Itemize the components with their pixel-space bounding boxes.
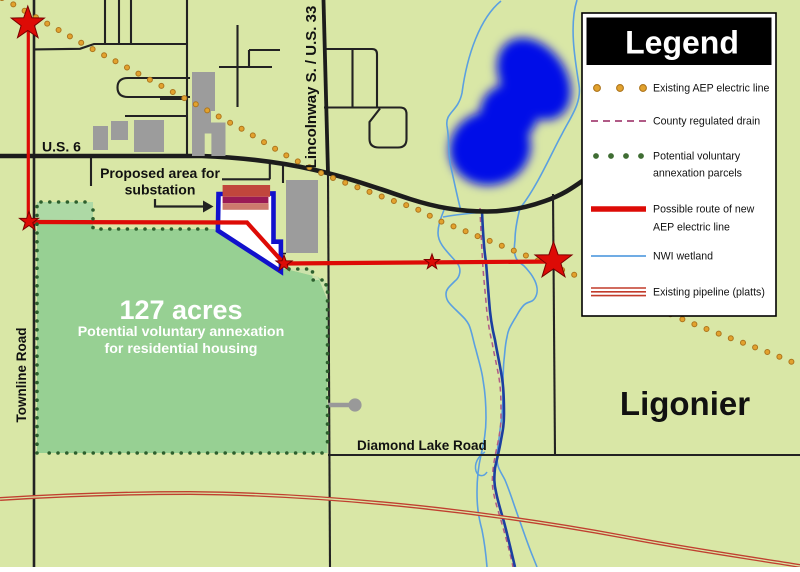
svg-text:for residential housing: for residential housing xyxy=(105,341,258,357)
svg-text:Townline Road: Townline Road xyxy=(14,328,29,423)
svg-text:Lincolnway S. / U.S. 33: Lincolnway S. / U.S. 33 xyxy=(303,6,320,169)
svg-text:County regulated drain: County regulated drain xyxy=(653,116,760,128)
svg-text:annexation parcels: annexation parcels xyxy=(653,168,742,180)
svg-text:Proposed area for: Proposed area for xyxy=(100,165,220,181)
svg-text:substation: substation xyxy=(125,182,196,198)
svg-text:U.S. 6: U.S. 6 xyxy=(42,139,81,155)
svg-text:Possible route of new: Possible route of new xyxy=(653,204,755,216)
svg-text:NWI wetland: NWI wetland xyxy=(653,251,713,263)
svg-text:Existing AEP electric line: Existing AEP electric line xyxy=(653,83,769,95)
svg-text:Existing pipeline (platts): Existing pipeline (platts) xyxy=(653,287,765,299)
svg-text:Potential voluntary annexation: Potential voluntary annexation xyxy=(78,324,285,340)
svg-text:127 acres: 127 acres xyxy=(119,295,242,325)
svg-text:Legend: Legend xyxy=(625,25,739,61)
svg-text:Potential voluntary: Potential voluntary xyxy=(653,151,741,163)
svg-text:AEP electric line: AEP electric line xyxy=(653,222,730,234)
svg-text:Diamond Lake Road: Diamond Lake Road xyxy=(357,438,487,453)
svg-text:Ligonier: Ligonier xyxy=(620,385,750,422)
